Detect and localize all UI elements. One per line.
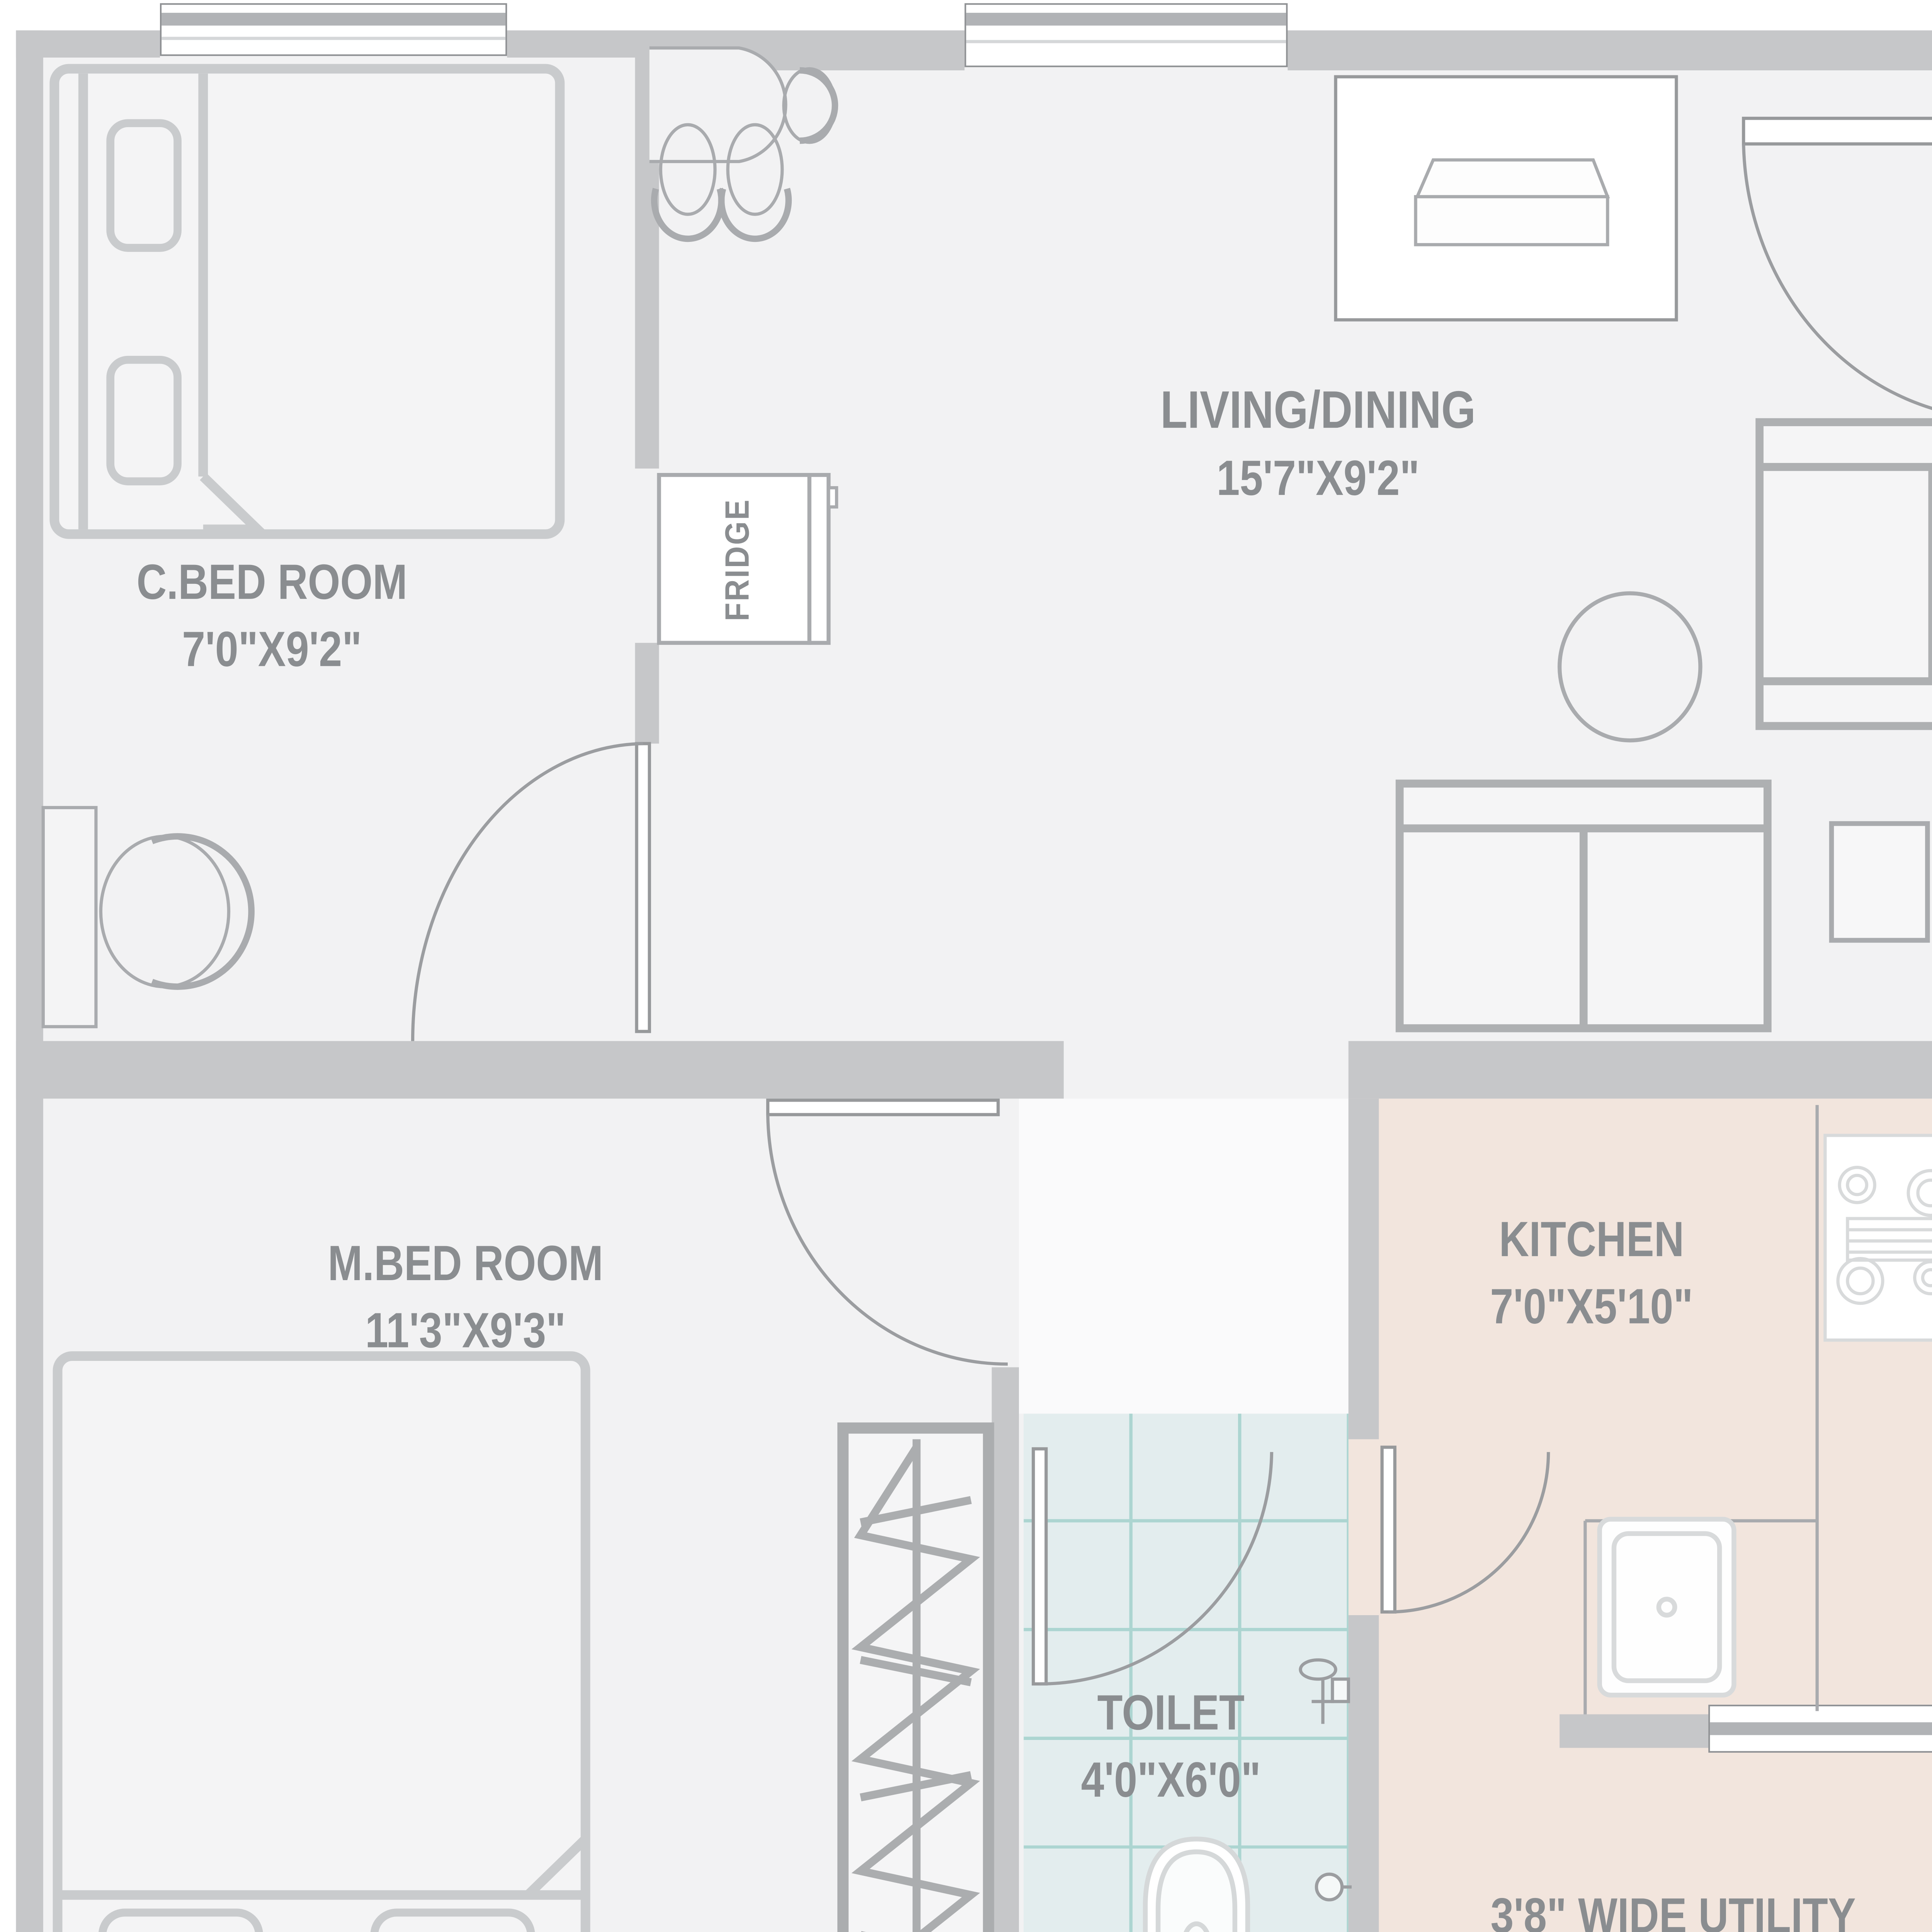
- utility-tap: [1316, 1874, 1352, 1900]
- coffee-pouf: [1560, 593, 1700, 740]
- mbed-double-bed: [58, 1356, 585, 1932]
- tv-unit: [1336, 77, 1677, 320]
- label-cbed-room: C.BED ROOM 7'0"X9'2": [111, 557, 433, 674]
- toilet-dims: 4'0"X6'0": [1081, 1755, 1261, 1804]
- stove-hob: [1825, 1135, 1932, 1340]
- door-entrance: [1743, 118, 1932, 419]
- furniture-layer: [0, 0, 1932, 1932]
- dining-table-set: [650, 48, 835, 239]
- label-kitchen: KITCHEN 7'0"X5'10": [1471, 1214, 1712, 1331]
- cbed-double-bed: [54, 69, 560, 534]
- label-mbed-room: M.BED ROOM 11'3"X9'3": [301, 1238, 629, 1355]
- living-room-name: LIVING/DINING: [1160, 383, 1476, 436]
- shower-mixer: [1301, 1660, 1349, 1724]
- dining-table: [650, 48, 786, 162]
- dining-chair: [784, 69, 835, 142]
- toilet-name: TOILET: [1081, 1688, 1261, 1737]
- mbed-room-name: M.BED ROOM: [328, 1238, 603, 1288]
- door-mbed: [768, 1100, 1008, 1364]
- door-cbed: [413, 743, 650, 1041]
- kitchen-sink: [1600, 1519, 1734, 1695]
- living-room-dims: 15'7"X9'2": [1160, 453, 1476, 503]
- label-fridge: FRIDGE: [720, 498, 758, 621]
- door-toilet: [1033, 1449, 1272, 1684]
- label-utility: 3'8" WIDE UTILITY: [1456, 1891, 1891, 1932]
- mbed-room-dims: 11'3"X9'3": [328, 1306, 603, 1355]
- utility-name: 3'8" WIDE UTILITY: [1491, 1891, 1856, 1932]
- sofa-bottom: [1400, 784, 1767, 1028]
- cbed-room-dims: 7'0"X9'2": [136, 624, 407, 674]
- sofa-right: [1760, 422, 1932, 726]
- cbed-room-name: C.BED ROOM: [136, 557, 407, 607]
- floor-plan-page: C.BED ROOM 7'0"X9'2" LIVING/DINING 15'7"…: [0, 0, 1932, 1932]
- floor-plan-drawing: C.BED ROOM 7'0"X9'2" LIVING/DINING 15'7"…: [0, 0, 1932, 1932]
- door-kitchen: [1382, 1447, 1549, 1612]
- side-table: [1832, 823, 1927, 940]
- cbed-desk-chair: [43, 808, 252, 1027]
- kitchen-dims: 7'0"X5'10": [1490, 1282, 1693, 1331]
- tv-screen: [1417, 160, 1608, 197]
- mbed-wardrobe: [843, 1428, 989, 1932]
- kitchen-name: KITCHEN: [1490, 1214, 1693, 1264]
- label-toilet: TOILET 4'0"X6'0": [1064, 1688, 1278, 1804]
- toilet-wc: [1142, 1839, 1254, 1932]
- tv-base: [1416, 197, 1608, 245]
- label-living-dining: LIVING/DINING 15'7"X9'2": [1130, 383, 1506, 503]
